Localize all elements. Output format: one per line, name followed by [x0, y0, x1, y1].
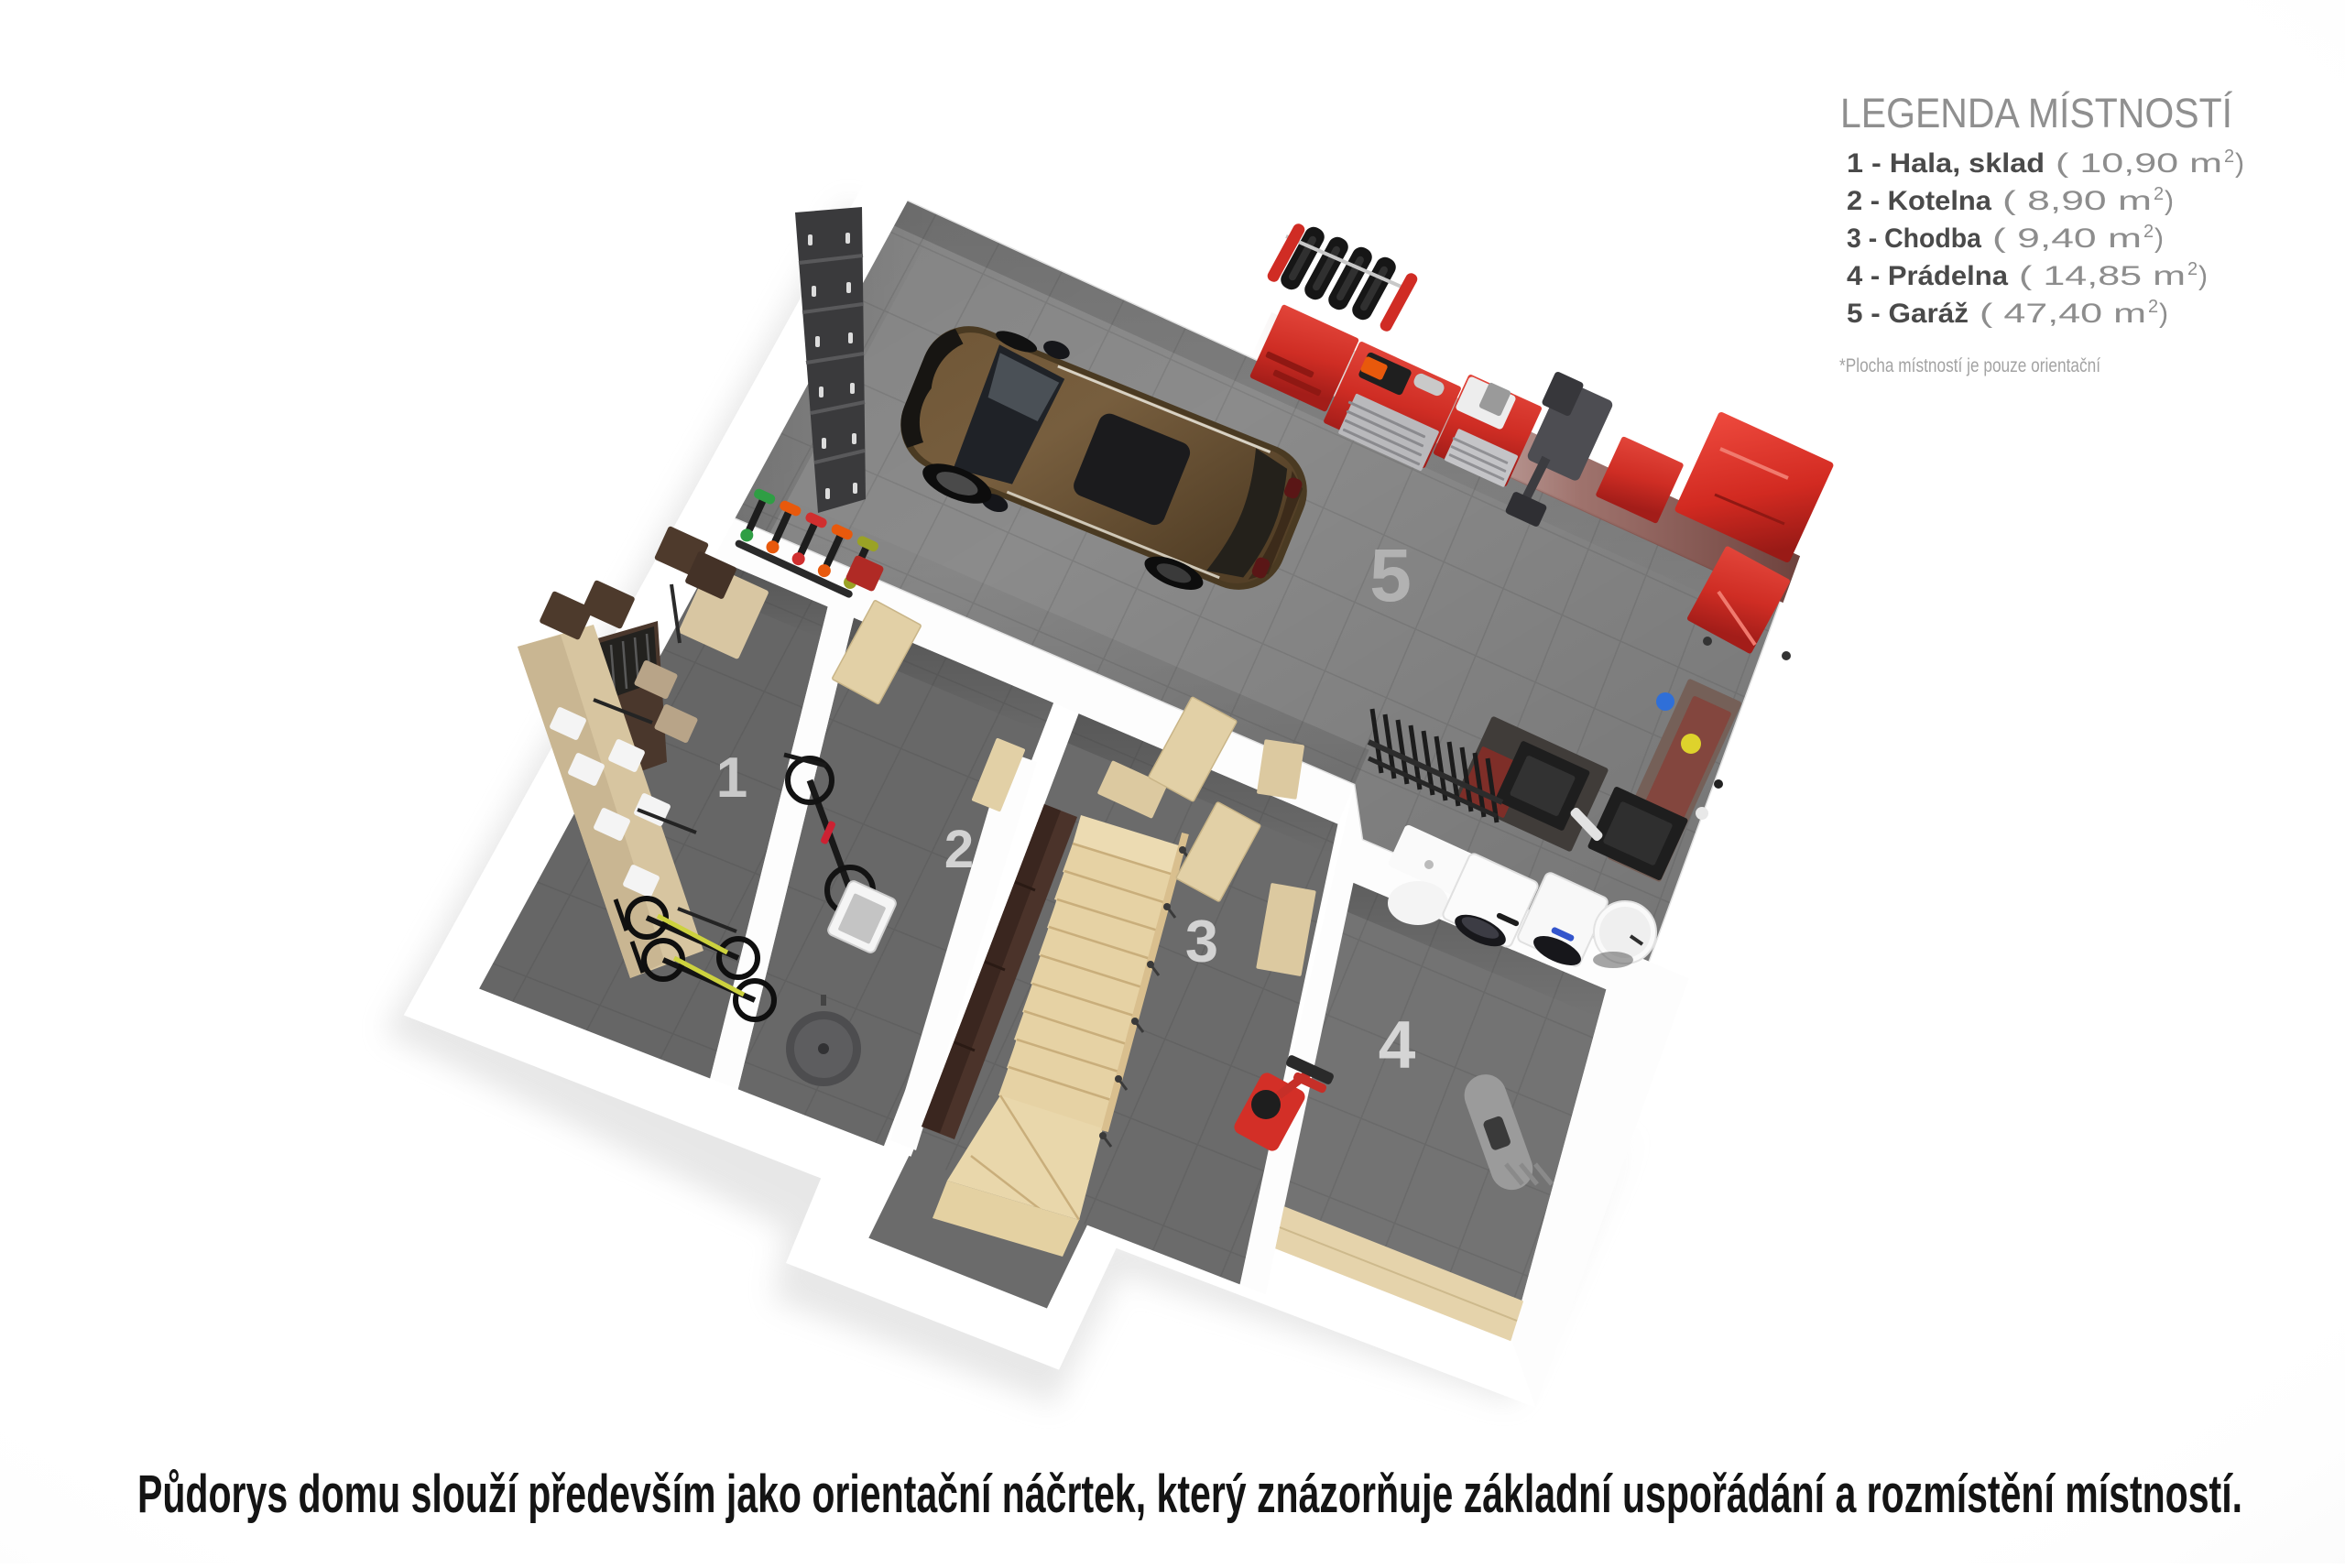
svg-text:): ) — [2165, 186, 2174, 216]
svg-text:( 8,90 m: ( 8,90 m — [2002, 186, 2152, 216]
svg-text:( 14,85 m: ( 14,85 m — [2019, 261, 2186, 291]
svg-text:5: 5 — [1369, 534, 1412, 617]
svg-text:Půdorys domu slouží především: Půdorys domu slouží především jako orien… — [137, 1465, 2242, 1524]
svg-text:): ) — [2235, 148, 2244, 179]
svg-text:2: 2 — [2187, 259, 2198, 279]
svg-text:( 10,90 m: ( 10,90 m — [2056, 148, 2222, 179]
svg-text:( 9,40 m: ( 9,40 m — [1992, 223, 2142, 254]
svg-text:1: 1 — [716, 746, 747, 810]
svg-text:*Plocha místností je pouze ori: *Plocha místností je pouze orientační — [1839, 355, 2100, 376]
svg-text:2: 2 — [2143, 222, 2154, 242]
svg-text:LEGENDA MÍSTNOSTÍ: LEGENDA MÍSTNOSTÍ — [1840, 90, 2232, 136]
svg-text:): ) — [2154, 223, 2164, 254]
svg-text:3: 3 — [1185, 908, 1218, 975]
svg-text:2: 2 — [2154, 184, 2164, 204]
svg-text:): ) — [2198, 261, 2208, 291]
svg-text:5 - Garáž: 5 - Garáž — [1847, 299, 1969, 329]
svg-text:( 47,40 m: ( 47,40 m — [1980, 299, 2146, 329]
svg-text:2: 2 — [944, 820, 974, 879]
svg-text:4 - Prádelna: 4 - Prádelna — [1847, 261, 2008, 291]
svg-text:2 - Kotelna: 2 - Kotelna — [1847, 186, 1991, 216]
svg-text:): ) — [2159, 299, 2168, 329]
svg-text:2: 2 — [2148, 297, 2158, 317]
svg-text:2: 2 — [2224, 147, 2234, 167]
svg-text:4: 4 — [1379, 1008, 1416, 1083]
svg-text:1 - Hala, sklad: 1 - Hala, sklad — [1847, 148, 2045, 179]
svg-text:3 - Chodba: 3 - Chodba — [1847, 223, 1981, 254]
